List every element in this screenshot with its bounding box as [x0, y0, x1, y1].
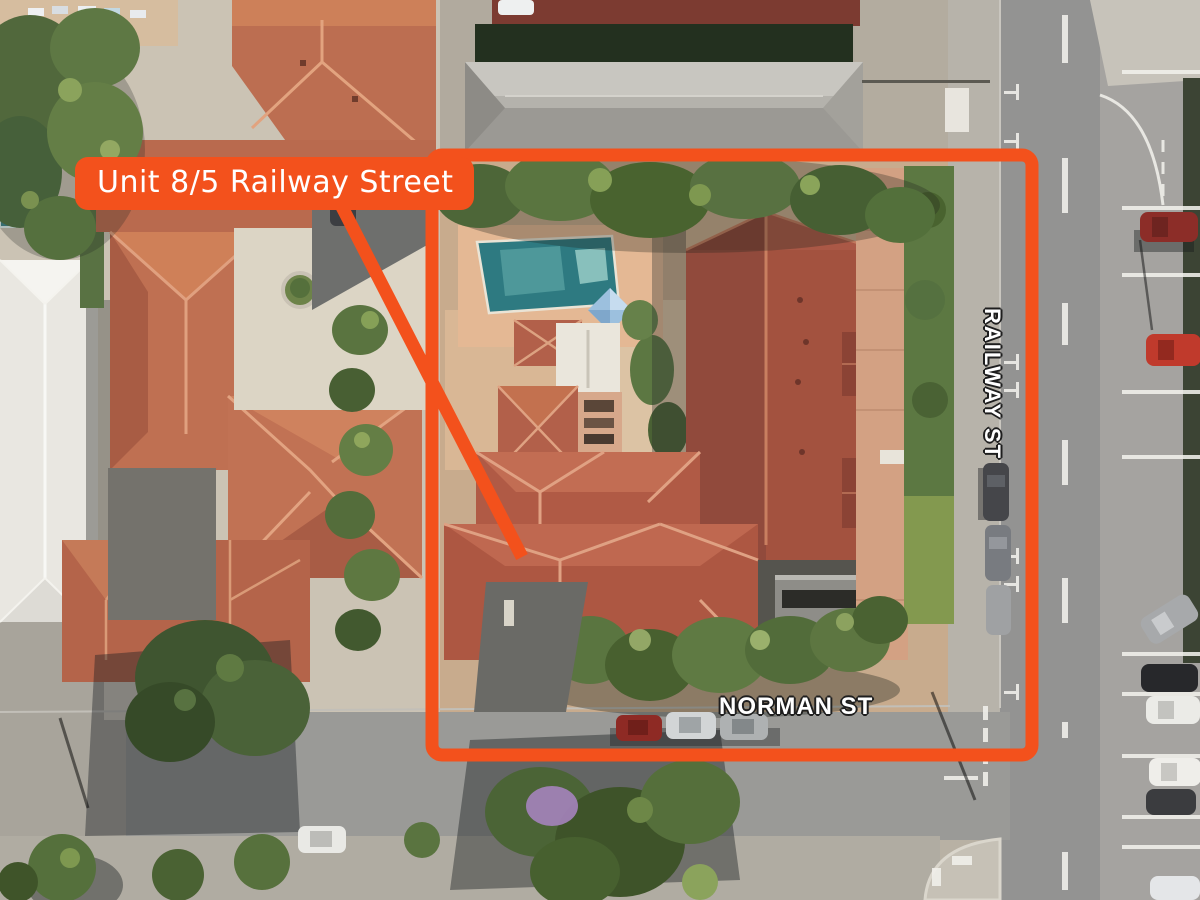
subject-property — [435, 151, 954, 718]
aerial-photo — [0, 0, 1200, 900]
aerial-map: Unit 8/5 Railway Street RAILWAY ST NORMA… — [0, 0, 1200, 900]
property-label: Unit 8/5 Railway Street — [75, 157, 474, 210]
main-building-roof — [686, 212, 882, 562]
railway-st-road — [1000, 0, 1100, 900]
gray-shingle-roof — [465, 62, 863, 152]
courtyard-roofs — [498, 320, 622, 470]
trees-top-left — [0, 8, 145, 260]
jacaranda-tree — [526, 786, 578, 826]
street-label-railway-st: RAILWAY ST — [979, 300, 1005, 468]
maroon-roof — [492, 0, 860, 26]
street-label-norman-st: NORMAN ST — [719, 693, 873, 721]
driveway-south — [108, 468, 216, 620]
east-hedge-strip — [1183, 78, 1200, 663]
